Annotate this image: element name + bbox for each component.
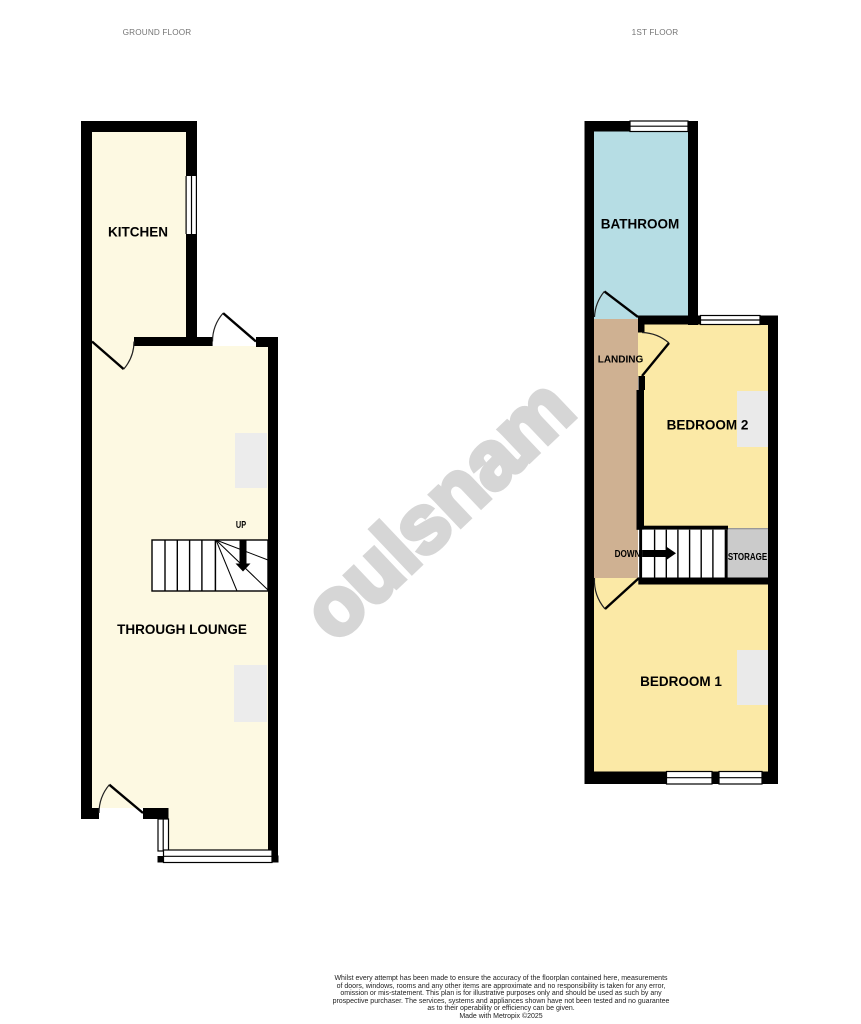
svg-text:LANDING: LANDING [598, 355, 644, 366]
svg-text:oulsnam: oulsnam [286, 362, 591, 658]
svg-text:BEDROOM 1: BEDROOM 1 [640, 674, 722, 689]
svg-text:1ST FLOOR: 1ST FLOOR [632, 28, 679, 37]
svg-text:THROUGH LOUNGE: THROUGH LOUNGE [117, 622, 247, 637]
svg-text:BATHROOM: BATHROOM [601, 217, 680, 232]
svg-text:KITCHEN: KITCHEN [108, 225, 168, 240]
svg-text:STORAGE: STORAGE [728, 551, 767, 562]
svg-text:DOWN: DOWN [615, 547, 641, 559]
svg-text:BEDROOM 2: BEDROOM 2 [667, 418, 749, 433]
svg-text:GROUND FLOOR: GROUND FLOOR [123, 28, 192, 37]
svg-text:UP: UP [236, 519, 246, 531]
